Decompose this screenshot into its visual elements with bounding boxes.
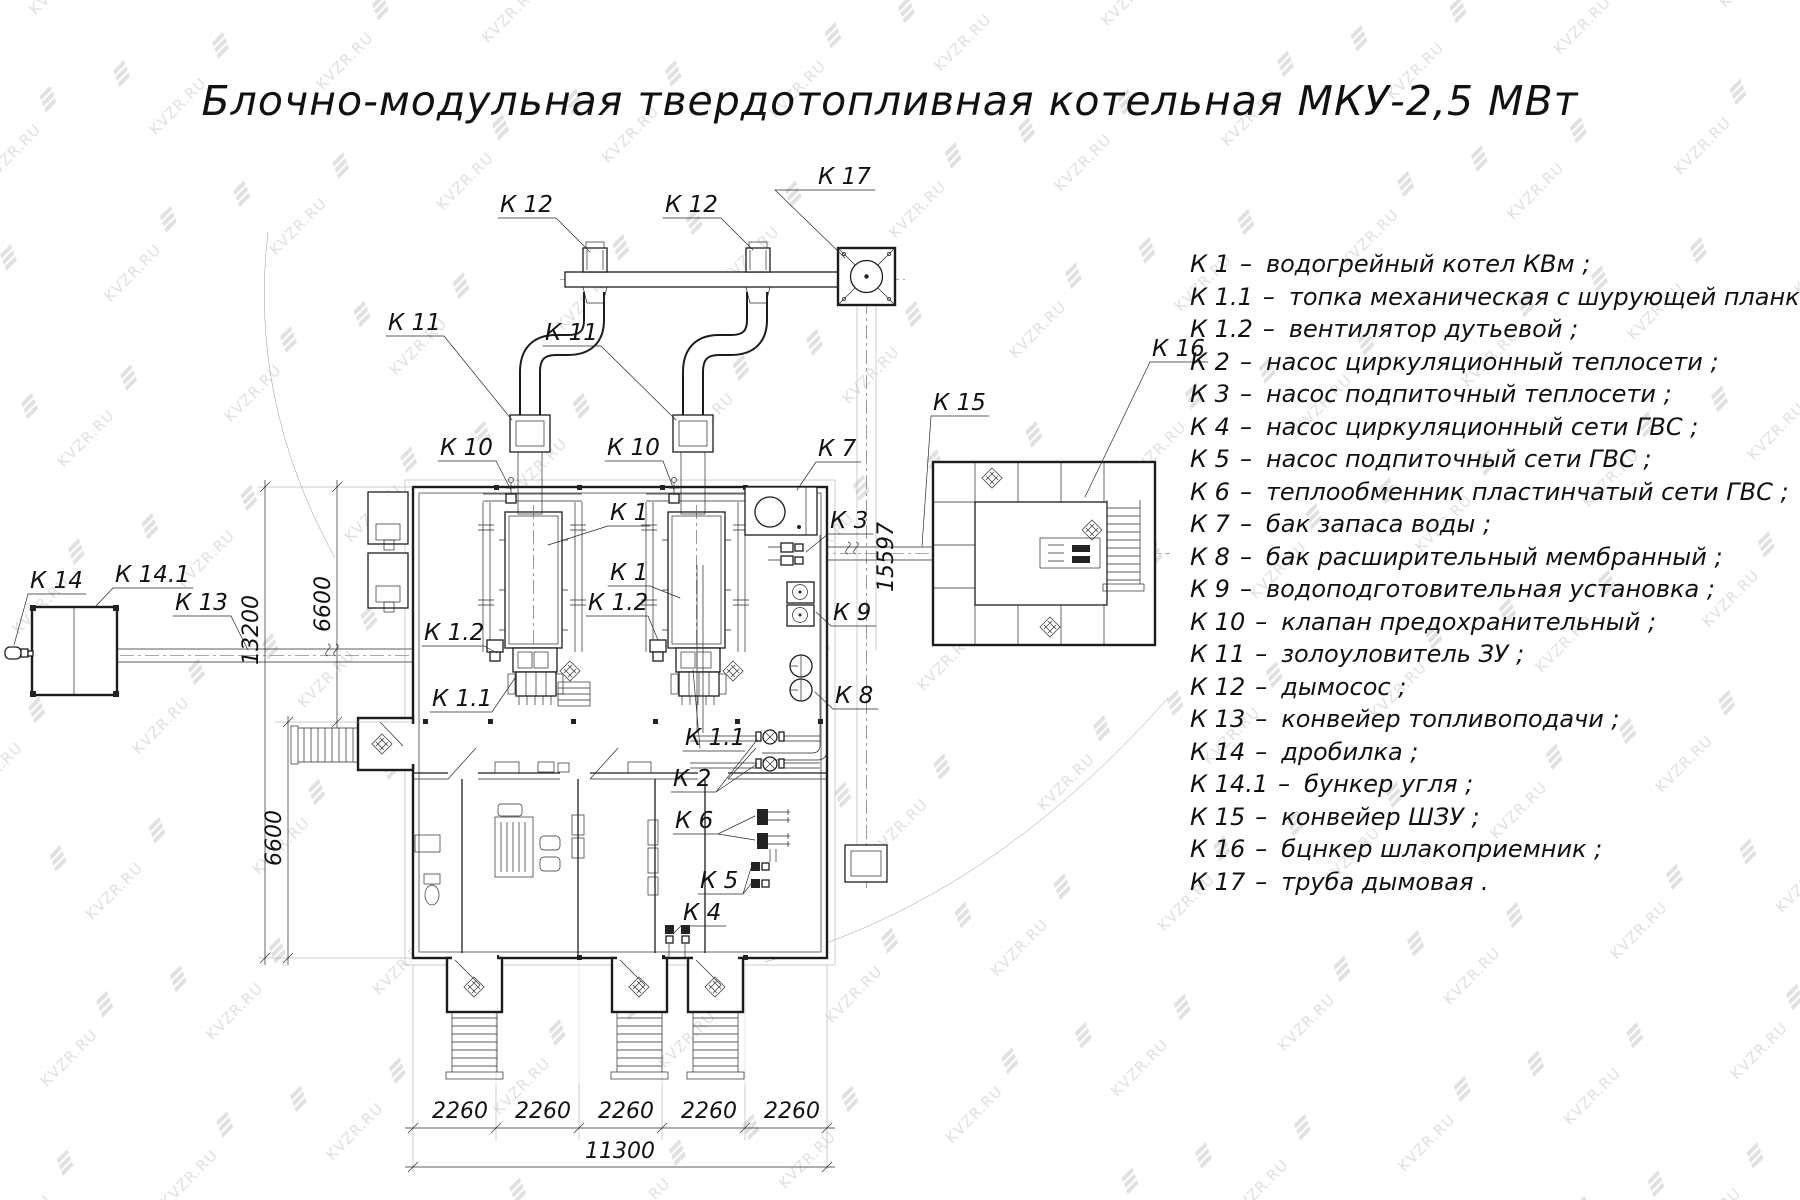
dim-6600-lower: 6600 [262,810,287,866]
svg-text:К 9: К 9 [833,600,871,626]
svg-text:К 12: К 12 [665,192,718,218]
dim-2260-4: 2260 [681,1099,737,1124]
legend-item: К 2–насос циркуляционный теплосети ; [1190,348,1719,376]
ash-collector-k11-1 [510,415,550,452]
coal-bunker-k14-1 [30,605,119,697]
blower-fan-k1-2-2 [650,640,666,661]
svg-text:К 14.1: К 14.1 [115,562,190,588]
svg-text:К 1.2: К 1.2 [588,590,648,616]
water-tank-k7 [745,487,817,535]
svg-text:К 1.1: К 1.1 [685,725,745,751]
legend-item: К 1–водогрейный котел КВм ; [1190,250,1590,278]
legend-item: К 4–насос циркуляционный сети ГВС ; [1190,413,1698,441]
svg-text:К 5: К 5 [700,868,738,894]
slag-bunker-k16 [933,462,1155,645]
dim-13200: 13200 [239,595,264,665]
svg-text:К 2: К 2 [673,766,711,792]
dim-11300: 11300 [585,1139,655,1164]
legend-item: К 14.1–бункер угля ; [1190,770,1473,798]
blower-fan-k1-2-1 [487,640,503,661]
dim-6600-upper: 6600 [311,576,336,632]
dim-2260-1: 2260 [432,1099,488,1124]
svg-text:К 15: К 15 [933,390,986,416]
legend-item: К 12–дымосос ; [1190,673,1406,701]
legend-item: К 14–дробилка ; [1190,738,1418,766]
ash-collector-k11-2 [673,415,713,452]
legend-item: К 11–золоуловитель ЗУ ; [1190,640,1524,668]
legend-item: К 10–клапан предохранительный ; [1190,608,1656,636]
stoker-k1-1-2 [671,648,726,705]
legend-item: К 17–труба дымовая . [1190,868,1489,896]
chimney-k17 [838,248,895,305]
svg-text:К 6: К 6 [675,808,713,834]
legend-item: К 15–конвейер ШЗУ ; [1190,803,1480,831]
svg-text:К 13: К 13 [175,590,228,616]
svg-text:К 10: К 10 [440,435,493,461]
svg-text:К 1: К 1 [610,500,648,526]
legend-item: К 6–теплообменник пластинчатый сети ГВС … [1190,478,1789,506]
svg-text:К 1: К 1 [610,560,648,586]
stoker-k1-1-1 [508,648,563,705]
legend-item: К 8–бак расширительный мембранный ; [1190,543,1723,571]
svg-text:К 7: К 7 [818,436,857,462]
svg-text:К 11: К 11 [545,320,598,346]
drawing-sheet: KVZR.RU KVZR.RU [0,0,1800,1200]
dim-15597: 15597 [874,522,899,592]
drawing-title: Блочно-модульная твердотопливная котельн… [202,77,1579,125]
svg-text:К 3: К 3 [830,508,868,534]
dim-2260-2: 2260 [515,1099,571,1124]
svg-text:К 8: К 8 [835,683,873,709]
legend-item: К 13–конвейер топливоподачи ; [1190,705,1620,733]
svg-text:К 10: К 10 [607,435,660,461]
dim-2260-3: 2260 [598,1099,654,1124]
svg-text:К 4: К 4 [683,900,721,926]
legend-item: К 9–водоподготовительная установка ; [1190,575,1715,603]
svg-text:К 14: К 14 [30,568,83,594]
svg-text:К 17: К 17 [818,164,871,190]
dim-2260-5: 2260 [764,1099,820,1124]
legend-item: К 1.2–вентилятор дутьевой ; [1190,315,1578,343]
svg-text:К 1.1: К 1.1 [432,686,492,712]
svg-text:К 11: К 11 [388,310,441,336]
svg-text:К 12: К 12 [500,192,553,218]
svg-text:К 1.2: К 1.2 [424,620,484,646]
